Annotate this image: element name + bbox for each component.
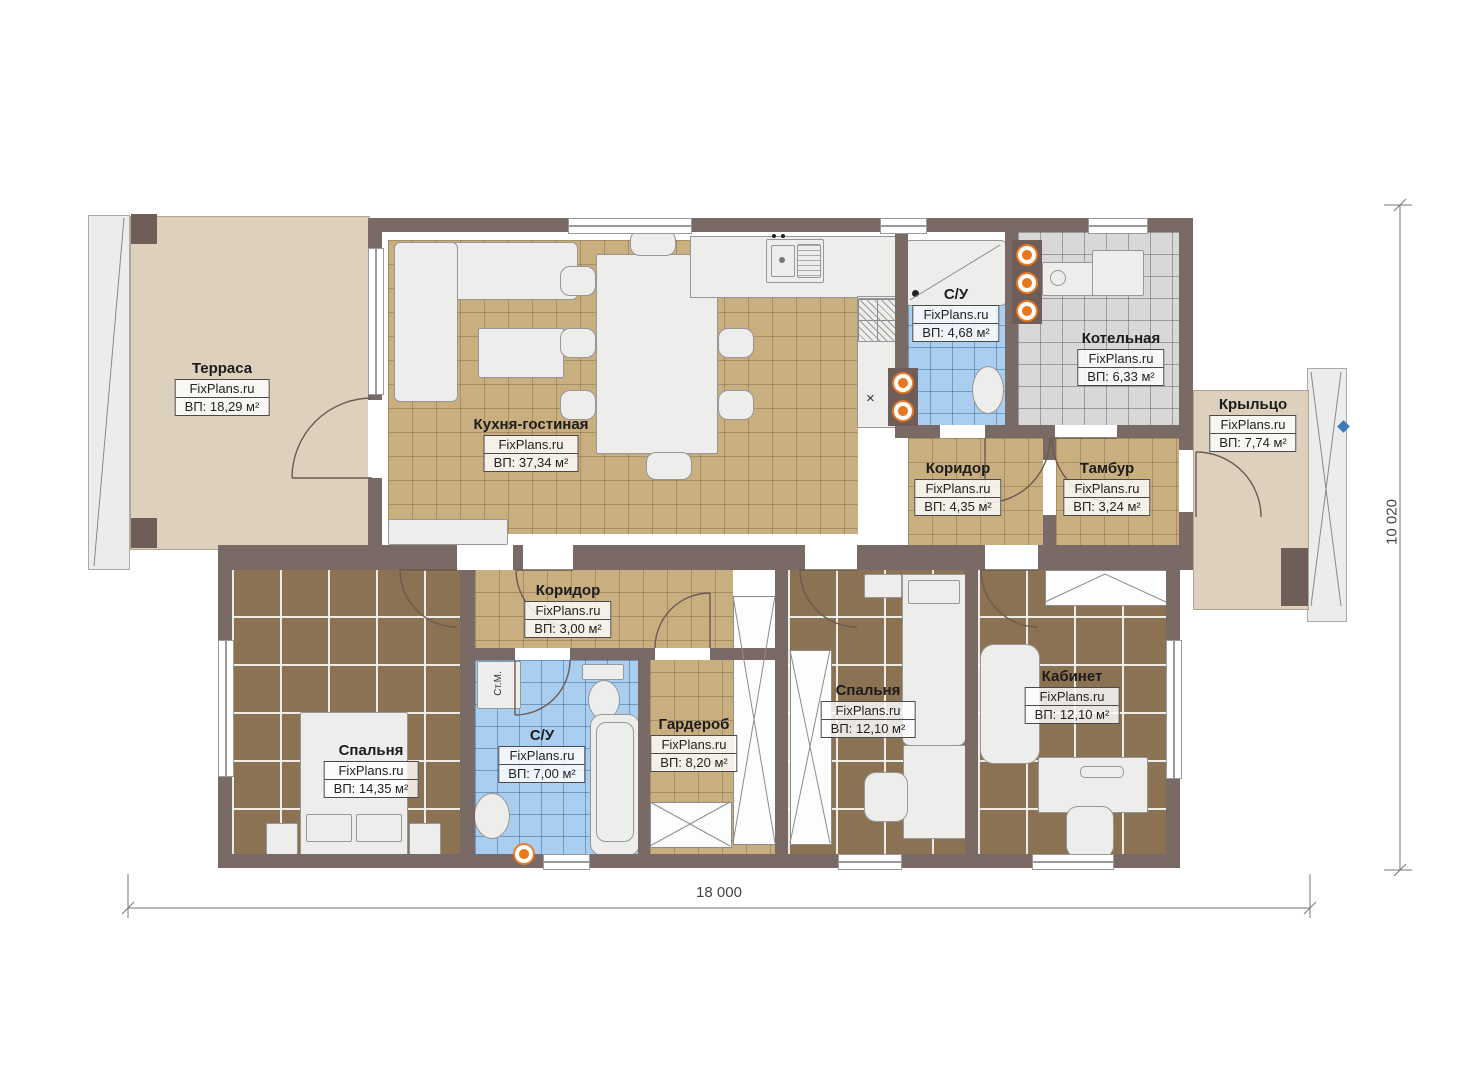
room-label-terrace: Терраса FixPlans.ruВП: 18,29 м² xyxy=(175,360,270,416)
room-name: С/У xyxy=(498,727,585,744)
desk-item xyxy=(1080,766,1124,778)
heating-outlet-icon xyxy=(1016,300,1038,322)
watermark: FixPlans.ru xyxy=(525,602,610,619)
room-name: Кухня-гостиная xyxy=(474,416,589,433)
floor-drain-mark: × xyxy=(866,390,875,407)
wall-wardrobe-bedroom2 xyxy=(775,568,788,854)
room-area: ВП: 12,10 м² xyxy=(822,719,915,737)
wall-su2-wardrobe xyxy=(638,660,650,854)
room-name: Тамбур xyxy=(1063,460,1150,477)
room-name: Крыльцо xyxy=(1209,396,1296,413)
faucet-icon xyxy=(772,234,776,238)
door-corridor1-tambour xyxy=(1043,460,1056,515)
window-office-bottom xyxy=(1032,854,1114,870)
room-label-corridor2: Коридор FixPlans.ruВП: 3,00 м² xyxy=(524,582,611,638)
window-top-living xyxy=(568,218,692,234)
su2-sink xyxy=(474,793,510,839)
room-label-corridor1: Коридор FixPlans.ruВП: 4,35 м² xyxy=(914,460,1001,516)
watermark: FixPlans.ru xyxy=(485,436,578,453)
desk xyxy=(903,745,967,839)
room-name: Коридор xyxy=(914,460,1001,477)
watermark: FixPlans.ru xyxy=(1210,416,1295,433)
dining-chair xyxy=(560,266,596,296)
office-chair xyxy=(864,772,908,822)
office-chair xyxy=(1066,806,1114,858)
room-name: Спальня xyxy=(324,742,419,759)
door-bedroom1 xyxy=(457,545,513,570)
watermark: FixPlans.ru xyxy=(1064,480,1149,497)
room-area: ВП: 18,29 м² xyxy=(176,397,269,415)
room-label-tambour: Тамбур FixPlans.ruВП: 3,24 м² xyxy=(1063,460,1150,516)
watermark: FixPlans.ru xyxy=(1078,350,1163,367)
door-corridor2 xyxy=(523,545,573,570)
window-top-boiler xyxy=(1088,218,1148,234)
water-heater xyxy=(1092,250,1144,296)
boiler-dial-icon xyxy=(1050,270,1066,286)
wall-top xyxy=(368,218,1193,232)
closet-x xyxy=(650,802,732,848)
door-su1 xyxy=(940,425,985,438)
door-terrace xyxy=(368,400,382,478)
wall-bedroom1-corridor2 xyxy=(460,568,475,854)
heating-outlet-icon xyxy=(1016,272,1038,294)
coffee-table xyxy=(478,328,564,378)
su1-sink xyxy=(972,366,1004,414)
room-area: ВП: 12,10 м² xyxy=(1026,705,1119,723)
room-label-kitchen: Кухня-гостиная FixPlans.ruВП: 37,34 м² xyxy=(474,416,589,472)
watermark: FixPlans.ru xyxy=(915,480,1000,497)
dimension-height: 10 020 xyxy=(1384,499,1401,545)
room-label-boiler: Котельная FixPlans.ruВП: 6,33 м² xyxy=(1077,330,1164,386)
bathtub-inner xyxy=(596,722,634,842)
room-label-bedroom1: Спальня FixPlans.ruВП: 14,35 м² xyxy=(324,742,419,798)
roof-overhang-right xyxy=(1307,368,1347,622)
room-name: Коридор xyxy=(524,582,611,599)
sink-drainer xyxy=(797,244,821,278)
nightstand xyxy=(266,823,298,855)
stove-icon xyxy=(857,298,897,342)
column-terrace-bottom xyxy=(131,518,157,548)
door-boiler xyxy=(1055,425,1117,438)
window-top-su1 xyxy=(880,218,927,234)
dimension-width: 18 000 xyxy=(696,884,742,901)
window-bedroom1-left xyxy=(218,640,234,777)
room-label-office: Кабинет FixPlans.ruВП: 12,10 м² xyxy=(1025,668,1120,724)
window-terrace-kitchen xyxy=(368,248,384,395)
watermark: FixPlans.ru xyxy=(913,306,998,323)
room-name: Гардероб xyxy=(650,716,737,733)
room-label-bedroom2: Спальня FixPlans.ruВП: 12,10 м² xyxy=(821,682,916,738)
door-office xyxy=(985,545,1038,570)
pillow xyxy=(356,814,402,842)
dining-chair xyxy=(718,328,754,358)
nightstand xyxy=(864,574,902,598)
watermark: FixPlans.ru xyxy=(651,736,736,753)
door-porch xyxy=(1179,450,1193,512)
window-office-right xyxy=(1166,640,1182,779)
door-su2 xyxy=(515,648,570,660)
heating-outlet-icon xyxy=(1016,244,1038,266)
room-area: ВП: 7,74 м² xyxy=(1210,433,1295,451)
room-area: ВП: 3,00 м² xyxy=(525,619,610,637)
wall-right-top xyxy=(1179,218,1193,570)
watermark: FixPlans.ru xyxy=(499,747,584,764)
room-label-su1: С/У FixPlans.ruВП: 4,68 м² xyxy=(912,286,999,342)
faucet-icon xyxy=(781,234,785,238)
tv-stand xyxy=(388,519,508,545)
room-area: ВП: 4,35 м² xyxy=(915,497,1000,515)
column-terrace-top xyxy=(131,214,157,244)
room-name: С/У xyxy=(912,286,999,303)
watermark: FixPlans.ru xyxy=(1026,688,1119,705)
pillow xyxy=(306,814,352,842)
room-name: Котельная xyxy=(1077,330,1164,347)
sofa-chaise xyxy=(394,242,458,402)
door-wardrobe xyxy=(655,648,710,660)
dining-chair xyxy=(718,390,754,420)
floor-plan: × Ст.М. xyxy=(0,0,1474,1080)
sink-drain-icon xyxy=(779,257,785,263)
room-label-porch: Крыльцо FixPlans.ruВП: 7,74 м² xyxy=(1209,396,1296,452)
watermark: FixPlans.ru xyxy=(822,702,915,719)
room-area: ВП: 6,33 м² xyxy=(1078,367,1163,385)
room-area: ВП: 14,35 м² xyxy=(325,779,418,797)
dining-chair xyxy=(646,452,692,480)
room-name: Спальня xyxy=(821,682,916,699)
room-label-wardrobe: Гардероб FixPlans.ruВП: 8,20 м² xyxy=(650,716,737,772)
room-area: ВП: 37,34 м² xyxy=(485,453,578,471)
nightstand xyxy=(409,823,441,855)
wall-bedroom2-office xyxy=(965,568,978,854)
column-porch xyxy=(1281,548,1308,606)
heating-outlet-icon xyxy=(513,843,535,865)
room-label-su2: С/У FixPlans.ruВП: 7,00 м² xyxy=(498,727,585,783)
room-area: ВП: 8,20 м² xyxy=(651,753,736,771)
washing-machine-label: Ст.М. xyxy=(493,671,504,696)
pillow xyxy=(908,580,960,604)
room-name: Терраса xyxy=(175,360,270,377)
closet-x xyxy=(733,596,777,845)
watermark: FixPlans.ru xyxy=(325,762,418,779)
roof-overhang-left xyxy=(88,215,130,570)
toilet-tank xyxy=(582,664,624,680)
dining-chair xyxy=(560,328,596,358)
room-name: Кабинет xyxy=(1025,668,1120,685)
window-su2-bottom xyxy=(543,854,590,870)
door-bedroom2 xyxy=(805,545,857,570)
closet-x xyxy=(790,650,832,845)
heating-outlet-icon xyxy=(892,400,914,422)
watermark: FixPlans.ru xyxy=(176,380,269,397)
room-area: ВП: 3,24 м² xyxy=(1064,497,1149,515)
room-area: ВП: 7,00 м² xyxy=(499,764,584,782)
room-area: ВП: 4,68 м² xyxy=(913,323,998,341)
window-bedroom2-bottom xyxy=(838,854,902,870)
heating-outlet-icon xyxy=(892,372,914,394)
office-wardrobe xyxy=(1045,570,1168,606)
